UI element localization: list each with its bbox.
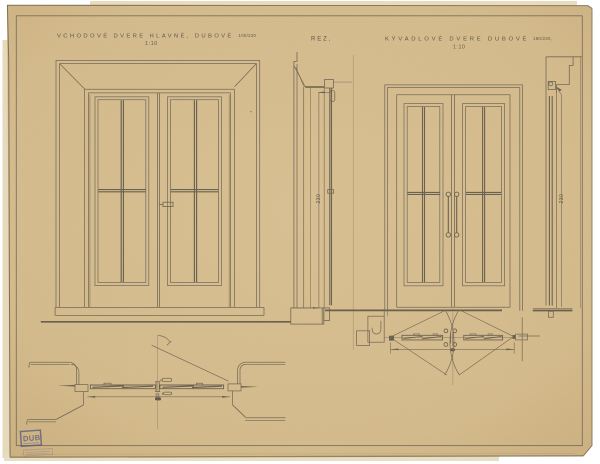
svg-text:DUB: DUB [23,433,41,443]
